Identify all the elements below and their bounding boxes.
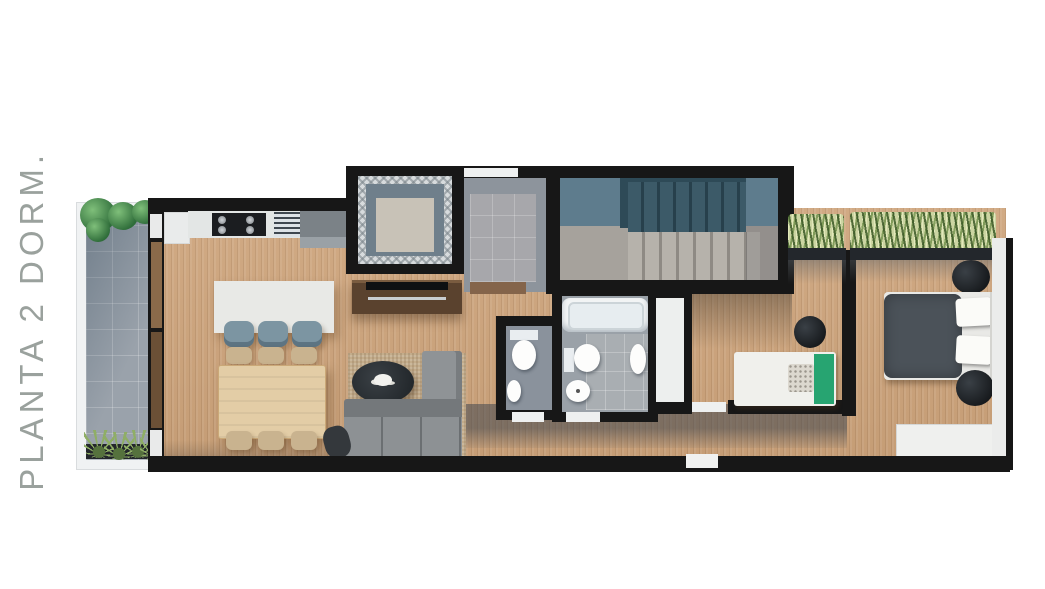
table-decor-icon — [374, 374, 392, 386]
toilet-tank-icon — [510, 330, 538, 340]
lightwell-mat — [376, 198, 434, 252]
sofa-seats — [344, 417, 462, 459]
bed-pillow — [788, 364, 814, 392]
tv-icon — [366, 282, 448, 290]
planter-box — [850, 248, 998, 260]
toilet-icon — [574, 344, 600, 372]
closet-column — [656, 298, 684, 402]
bedroom2-left-wall — [684, 294, 692, 406]
bar-stool — [258, 321, 288, 347]
stove-icon — [212, 213, 266, 236]
terrace-door-jamb — [150, 430, 162, 456]
north-sill — [464, 168, 518, 177]
terrace-door-jamb — [150, 214, 162, 238]
door-threshold — [692, 402, 726, 412]
tv-console-handle — [368, 297, 446, 300]
bidet-icon — [566, 380, 590, 402]
dining-chair — [226, 347, 252, 364]
fridge-cabinet — [164, 212, 190, 244]
bidet-drain — [576, 389, 580, 393]
sofa-backrest — [344, 399, 462, 419]
door-threshold — [512, 412, 544, 422]
terrace-door-frame — [151, 332, 162, 428]
bar-stool — [224, 321, 254, 347]
stair-upper-steps — [628, 182, 746, 232]
nightstand-pouf — [956, 370, 994, 406]
kitchen-cabinet — [300, 211, 350, 237]
bedroom2-chair — [794, 316, 826, 348]
door-threshold — [566, 412, 600, 422]
bar-stool — [292, 321, 322, 347]
planter-box — [788, 248, 846, 260]
dining-chair — [226, 431, 252, 450]
coffee-table — [352, 361, 414, 403]
dining-chair — [291, 431, 317, 450]
bed-green-blanket — [814, 354, 834, 404]
planter-grass — [850, 212, 996, 250]
sink-icon — [507, 380, 521, 402]
entry-door — [470, 282, 526, 294]
toilet-icon — [512, 340, 536, 370]
kitchen-top-wall — [148, 198, 362, 212]
burner-icon — [218, 226, 226, 234]
bush-icon — [86, 218, 110, 242]
bed-pillow — [955, 335, 992, 365]
hall-wall-bottom — [648, 402, 692, 414]
main-entry-threshold — [686, 454, 718, 468]
dining-chair — [258, 347, 284, 364]
double-bed — [884, 292, 996, 380]
bedroom2-shadow — [692, 294, 792, 349]
bathtub-basin — [568, 302, 644, 330]
entry-stair-wall — [546, 178, 560, 294]
burner-icon — [246, 216, 254, 224]
sink-icon — [630, 344, 646, 374]
entry-hall-tile — [470, 194, 536, 282]
nightstand-pouf — [952, 260, 990, 294]
bed-pillow — [955, 297, 992, 327]
bed-duvet — [884, 294, 962, 378]
bedroom2-deck-shadow — [788, 256, 846, 284]
dining-chair — [291, 347, 317, 364]
planter-grass — [788, 214, 844, 250]
exterior-wall-edge — [1006, 238, 1013, 470]
kitchen-cabinet-face — [300, 237, 350, 248]
burner-icon — [218, 216, 226, 224]
dining-chair — [258, 431, 284, 450]
south-wall — [148, 456, 1010, 472]
single-bed — [734, 352, 836, 406]
floor-plan — [0, 0, 1045, 589]
floor-plan-canvas: PLANTA 2 DORM. — [0, 0, 1045, 589]
bathtub-icon — [562, 298, 648, 332]
toilet-tank-icon — [564, 348, 574, 372]
burner-icon — [246, 226, 254, 234]
terrace-door-frame — [151, 242, 162, 328]
dining-table — [218, 365, 326, 439]
